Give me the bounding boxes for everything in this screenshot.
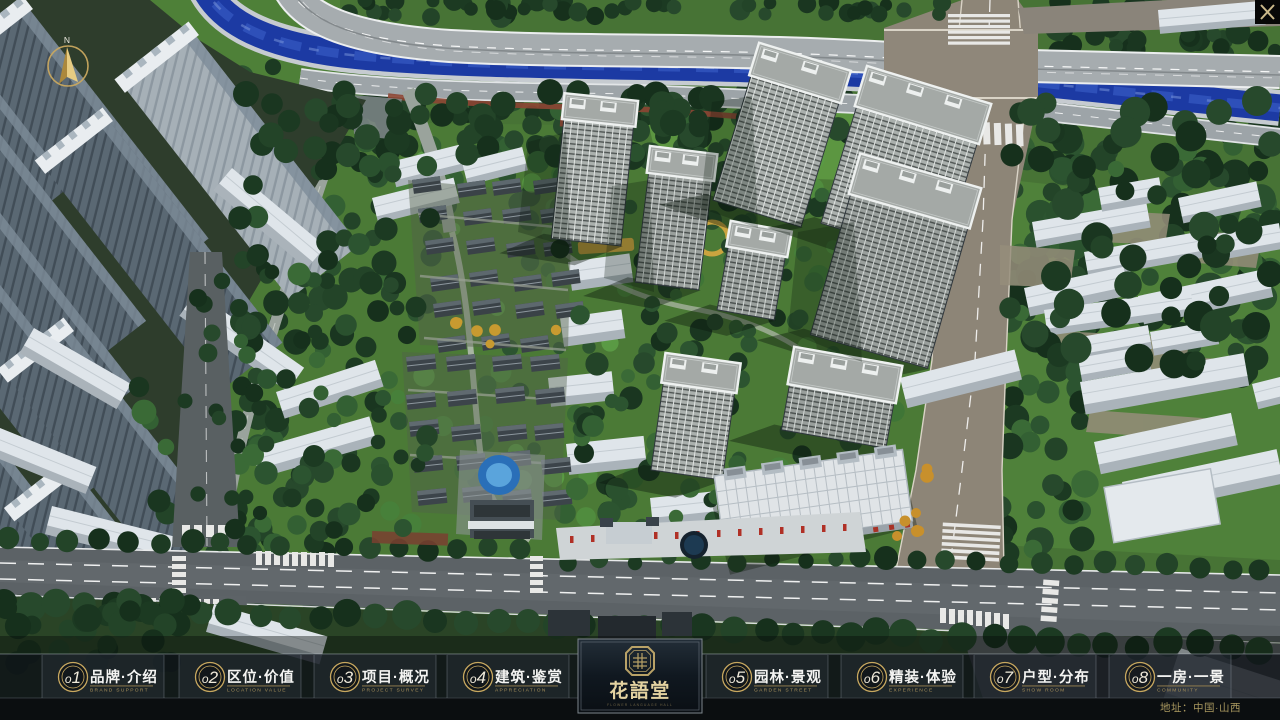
svg-text:N: N bbox=[64, 35, 70, 45]
svg-text:花語堂: 花語堂 bbox=[609, 679, 671, 702]
svg-text:BRAND SUPPORT: BRAND SUPPORT bbox=[90, 688, 149, 694]
svg-text:园林·景观: 园林·景观 bbox=[754, 668, 822, 686]
svg-text:COMMUNITY: COMMUNITY bbox=[1157, 688, 1199, 694]
svg-text:LOCATION VALUE: LOCATION VALUE bbox=[227, 688, 287, 694]
svg-text:EXPERIENCE: EXPERIENCE bbox=[889, 688, 934, 694]
svg-text:建筑·鉴赏: 建筑·鉴赏 bbox=[495, 668, 563, 686]
svg-text:项目·概况: 项目·概况 bbox=[362, 668, 430, 686]
svg-text:地址：中国·山西: 地址：中国·山西 bbox=[1160, 701, 1241, 714]
svg-text:区位·价值: 区位·价值 bbox=[227, 668, 295, 686]
svg-text:户型·分布: 户型·分布 bbox=[1022, 668, 1090, 686]
svg-text:FLOWER LANGUAGE HALL: FLOWER LANGUAGE HALL bbox=[607, 703, 673, 707]
svg-text:品牌·介绍: 品牌·介绍 bbox=[90, 668, 158, 686]
svg-text:精装·体验: 精装·体验 bbox=[889, 668, 957, 686]
svg-text:GARDEN STREET: GARDEN STREET bbox=[754, 688, 812, 694]
svg-text:SHOW ROOM: SHOW ROOM bbox=[1022, 688, 1066, 694]
svg-text:PROJECT SURVEY: PROJECT SURVEY bbox=[362, 688, 424, 694]
svg-text:一房·一景: 一房·一景 bbox=[1157, 668, 1225, 686]
svg-text:APPRECIATION: APPRECIATION bbox=[495, 688, 547, 694]
